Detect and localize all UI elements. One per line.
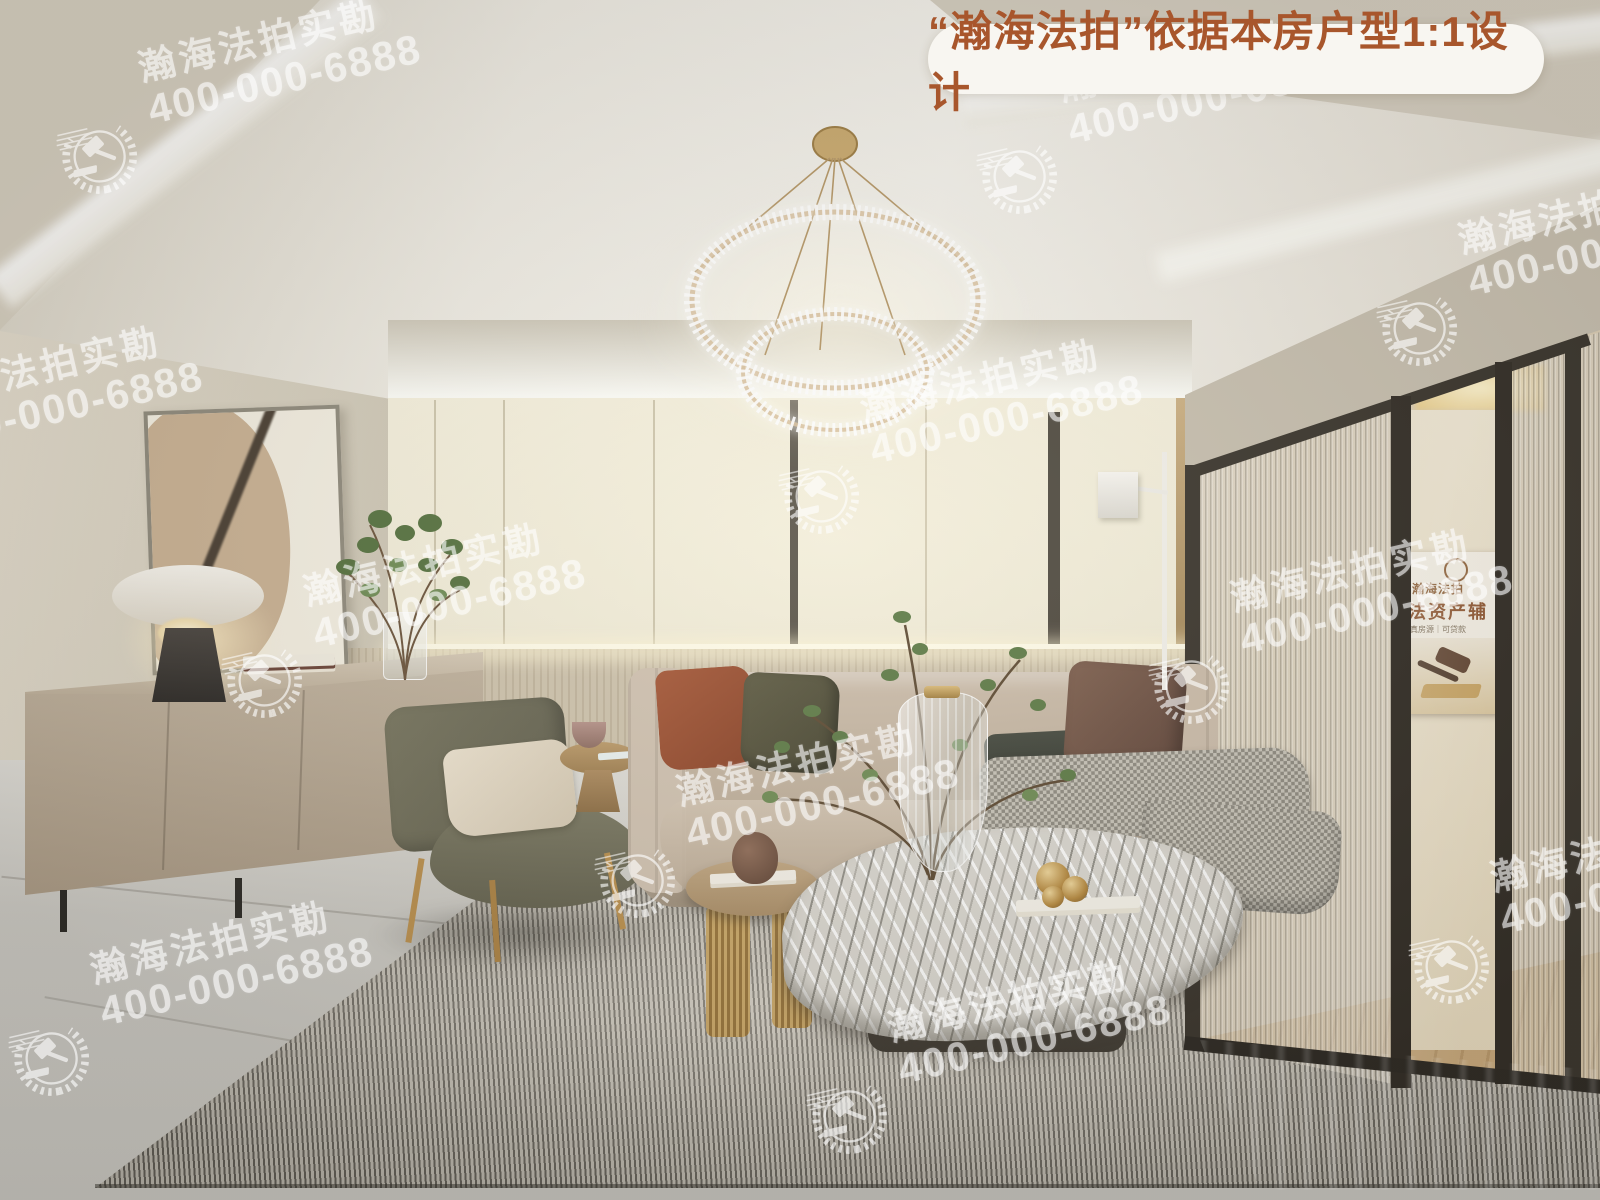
decor-gold-sphere <box>1042 886 1064 908</box>
promo-banner: “瀚海法拍”依据本房户型1:1设计 <box>928 24 1544 94</box>
armchair-pillow <box>442 738 578 839</box>
sideboard-leg <box>60 890 67 932</box>
sideboard-plant <box>310 495 480 685</box>
sideboard-leg <box>235 878 242 918</box>
glass-vase-gold-rim <box>924 686 960 698</box>
glass-vase <box>898 692 988 872</box>
glass-frame-vertical <box>1565 342 1581 1084</box>
glass-frame-vertical <box>1495 362 1512 1084</box>
decor-gold-sphere <box>1062 876 1088 902</box>
gold-table-leg <box>706 905 750 1037</box>
living-room-photo: 瀚海法拍 法资产辅 真房源｜可贷款 <box>0 0 1600 1200</box>
glass-frame-vertical <box>1391 396 1411 1088</box>
chandelier <box>620 100 1060 460</box>
floor-lamp-pole <box>1162 452 1167 690</box>
floor-lamp-head <box>1098 472 1138 518</box>
glass-partition-wall: 瀚海法拍 法资产辅 真房源｜可贷款 <box>1185 180 1600 1100</box>
promo-banner-text: “瀚海法拍”依据本房户型1:1设计 <box>928 0 1544 120</box>
